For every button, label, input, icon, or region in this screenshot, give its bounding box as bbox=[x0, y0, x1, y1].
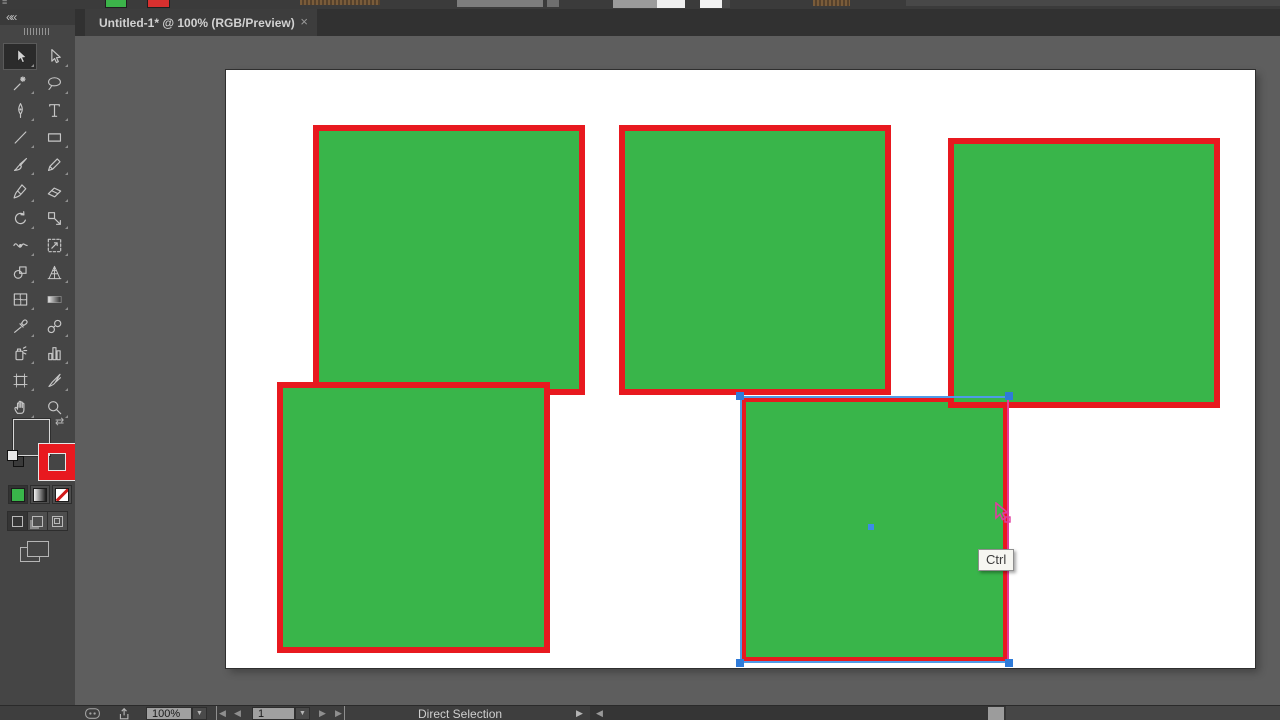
none-mode-icon bbox=[55, 488, 69, 502]
symbol-sprayer-icon bbox=[12, 345, 29, 362]
tool-paintbrush[interactable] bbox=[3, 151, 37, 178]
pen-icon bbox=[12, 102, 29, 119]
tab-close-icon[interactable]: × bbox=[300, 14, 308, 29]
direct-selection-cursor-icon bbox=[992, 502, 1014, 531]
green-rect-bottom-left[interactable] bbox=[277, 382, 550, 653]
gradient-icon bbox=[46, 291, 63, 308]
prev-artboard-button[interactable]: ◀ bbox=[234, 706, 241, 720]
tool-rotate[interactable] bbox=[3, 205, 37, 232]
tool-magic-wand[interactable] bbox=[3, 70, 37, 97]
tool-type[interactable] bbox=[37, 97, 71, 124]
swap-fill-stroke-icon[interactable]: ⇄ bbox=[55, 415, 64, 428]
rectangle-icon bbox=[46, 129, 63, 146]
capture-icon[interactable] bbox=[84, 706, 101, 720]
paintbrush-icon bbox=[12, 156, 29, 173]
tool-scale[interactable] bbox=[37, 205, 71, 232]
tool-lasso[interactable] bbox=[37, 70, 71, 97]
tool-hand[interactable] bbox=[3, 394, 37, 421]
draw-normal-icon bbox=[12, 516, 23, 527]
line-segment-icon bbox=[12, 129, 29, 146]
control-brush-sliver bbox=[300, 0, 380, 5]
tool-selection[interactable] bbox=[3, 43, 37, 70]
control-stroke-swatch-sliver bbox=[147, 0, 170, 8]
last-artboard-button[interactable]: ▶ bbox=[335, 706, 345, 720]
artboard-number-field[interactable]: 1 bbox=[252, 707, 295, 720]
slice-icon bbox=[46, 372, 63, 389]
type-icon bbox=[46, 102, 63, 119]
control-long-field-sliver bbox=[906, 0, 1280, 6]
tool-column-graph[interactable] bbox=[37, 340, 71, 367]
document-tab-bar: Untitled-1* @ 100% (RGB/Preview) × bbox=[75, 9, 1280, 37]
blob-brush-icon bbox=[12, 183, 29, 200]
green-rect-bottom-middle[interactable] bbox=[740, 396, 1009, 663]
control-bar-sliver: ≡ bbox=[0, 0, 1280, 9]
screen-mode-icon-front bbox=[27, 541, 49, 557]
status-bar: 100% ▼ ◀ ◀ 1 ▼ ▶ ▶ Direct Selection ▶ ◀ bbox=[0, 705, 1280, 720]
control-brush2-sliver bbox=[813, 0, 850, 6]
tool-eraser[interactable] bbox=[37, 178, 71, 205]
zoom-dropdown-button[interactable]: ▼ bbox=[192, 707, 207, 720]
eraser-icon bbox=[46, 183, 63, 200]
pencil-icon bbox=[46, 156, 63, 173]
tool-blend[interactable] bbox=[37, 313, 71, 340]
tool-width[interactable] bbox=[3, 232, 37, 259]
tool-zoom[interactable] bbox=[37, 394, 71, 421]
draw-behind-button[interactable] bbox=[27, 511, 48, 531]
artboard-icon bbox=[12, 372, 29, 389]
zoom-icon bbox=[46, 399, 63, 416]
control-light-field-sliver bbox=[613, 0, 657, 8]
tool-perspective-grid[interactable] bbox=[37, 259, 71, 286]
shape-builder-icon bbox=[12, 264, 29, 281]
stroke-color-swatch[interactable] bbox=[39, 444, 75, 480]
control-fill-swatch-sliver bbox=[105, 0, 127, 8]
export-icon[interactable] bbox=[116, 706, 131, 720]
tool-symbol-sprayer[interactable] bbox=[3, 340, 37, 367]
tool-line-segment[interactable] bbox=[3, 124, 37, 151]
control-white-field-sliver bbox=[657, 0, 685, 8]
blend-icon bbox=[46, 318, 63, 335]
column-graph-icon bbox=[46, 345, 63, 362]
control-gray-field-sliver bbox=[457, 0, 543, 7]
tool-pen[interactable] bbox=[3, 97, 37, 124]
tool-slice[interactable] bbox=[37, 367, 71, 394]
green-rect-top-middle[interactable] bbox=[619, 125, 891, 395]
next-artboard-button[interactable]: ▶ bbox=[319, 706, 326, 720]
tool-free-transform[interactable] bbox=[37, 232, 71, 259]
tools-panel: «« ⇄ bbox=[0, 9, 76, 705]
tool-mesh[interactable] bbox=[3, 286, 37, 313]
default-fill-chip bbox=[7, 450, 18, 461]
status-tool-label[interactable]: Direct Selection bbox=[418, 706, 502, 720]
scale-icon bbox=[46, 210, 63, 227]
tool-pencil[interactable] bbox=[37, 151, 71, 178]
width-icon bbox=[12, 237, 29, 254]
green-rect-top-left[interactable] bbox=[313, 125, 585, 395]
hand-icon bbox=[12, 399, 29, 416]
status-expand-icon[interactable]: ▶ bbox=[576, 706, 583, 720]
horizontal-scrollbar[interactable]: ◀ bbox=[590, 706, 1280, 720]
artboard-dropdown-button[interactable]: ▼ bbox=[295, 707, 310, 720]
screen-mode-button[interactable] bbox=[20, 539, 54, 563]
perspective-grid-icon bbox=[46, 264, 63, 281]
first-artboard-button[interactable]: ◀ bbox=[216, 706, 226, 720]
anchor-point[interactable] bbox=[736, 392, 744, 400]
gradient-mode-icon bbox=[33, 488, 47, 502]
illustrator-window: ≡ «« ⇄ bbox=[0, 0, 1280, 720]
drawing-modes-group bbox=[8, 511, 68, 531]
selection-icon bbox=[12, 48, 29, 65]
draw-behind-icon bbox=[32, 516, 43, 527]
canvas-pasteboard[interactable]: Ctrl bbox=[75, 36, 1280, 705]
tool-eyedropper[interactable] bbox=[3, 313, 37, 340]
mesh-icon bbox=[12, 291, 29, 308]
color-mode-icon bbox=[11, 488, 25, 502]
zoom-level-field[interactable]: 100% bbox=[146, 707, 192, 720]
draw-normal-button[interactable] bbox=[7, 511, 28, 531]
control-gray-button-sliver bbox=[547, 0, 559, 7]
gradient-mode-button[interactable] bbox=[30, 485, 50, 504]
tools-panel-header: «« bbox=[0, 9, 75, 25]
draw-inside-button[interactable] bbox=[47, 511, 68, 531]
default-fill-stroke-icon[interactable] bbox=[7, 450, 23, 466]
green-rect-top-right[interactable] bbox=[948, 138, 1220, 408]
tool-direct-selection[interactable] bbox=[37, 43, 71, 70]
direct-selection-icon bbox=[46, 48, 63, 65]
scrollbar-track-right[interactable] bbox=[1006, 706, 1280, 720]
rotate-icon bbox=[12, 210, 29, 227]
color-mode-button[interactable] bbox=[8, 485, 28, 504]
eyedropper-icon bbox=[12, 318, 29, 335]
anchor-point[interactable] bbox=[1005, 392, 1013, 400]
tool-blob-brush[interactable] bbox=[3, 178, 37, 205]
anchor-point[interactable] bbox=[736, 659, 744, 667]
scrollbar-thumb[interactable] bbox=[988, 707, 1004, 720]
scroll-left-icon[interactable]: ◀ bbox=[596, 706, 603, 720]
anchor-point[interactable] bbox=[1005, 659, 1013, 667]
document-tab[interactable]: Untitled-1* @ 100% (RGB/Preview) × bbox=[85, 9, 317, 36]
draw-inside-icon bbox=[52, 516, 63, 527]
document-tab-title: Untitled-1* @ 100% (RGB/Preview) bbox=[85, 16, 295, 30]
menu-hint-icon: ≡ bbox=[2, 0, 7, 4]
tools-grid bbox=[3, 43, 71, 421]
ctrl-tooltip: Ctrl bbox=[978, 549, 1014, 571]
free-transform-icon bbox=[46, 237, 63, 254]
tool-shape-builder[interactable] bbox=[3, 259, 37, 286]
panel-grip[interactable] bbox=[24, 28, 50, 35]
lasso-icon bbox=[46, 75, 63, 92]
collapse-panel-icon[interactable]: «« bbox=[6, 10, 15, 24]
control-white-button-sliver bbox=[700, 0, 730, 8]
none-mode-button[interactable] bbox=[52, 485, 72, 504]
tool-gradient[interactable] bbox=[37, 286, 71, 313]
center-point[interactable] bbox=[868, 524, 874, 530]
tool-artboard[interactable] bbox=[3, 367, 37, 394]
magic-wand-icon bbox=[12, 75, 29, 92]
tool-rectangle[interactable] bbox=[37, 124, 71, 151]
